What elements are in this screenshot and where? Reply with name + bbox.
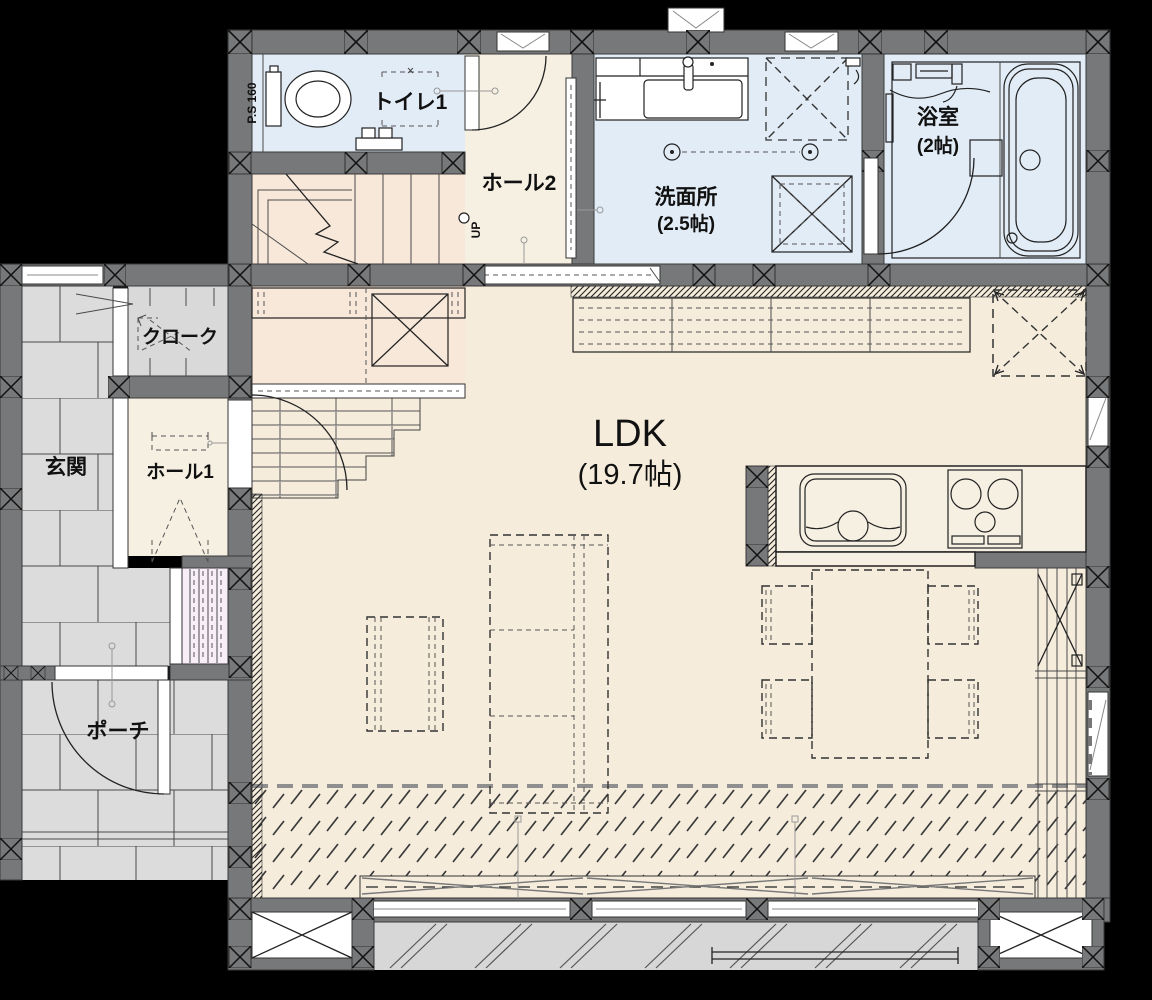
cloak-label: クローク [142, 326, 218, 348]
washroom-label: 洗面所 [655, 186, 718, 209]
counter-front [776, 552, 975, 566]
bathroom-floor [884, 54, 1086, 264]
bathroom-label: 浴室 [917, 105, 959, 129]
ps-label: P.S 160 [245, 82, 259, 123]
toilet-tank [266, 72, 281, 126]
closet-floor [252, 286, 465, 384]
hall2-label: ホール2 [482, 172, 557, 195]
hall1-step-edge [113, 398, 128, 568]
balcony-box-left [252, 912, 352, 958]
entrance-tiles-lower [113, 568, 170, 666]
toilet-door-leaf [465, 56, 479, 130]
floor-plan-page: P.S 160 トイレ1 ホール2 洗面所 (2.5帖) 浴室 (2帖) クロー… [0, 0, 1152, 1000]
toilet-label: トイレ1 [373, 91, 448, 114]
bath-door-leaf [864, 158, 878, 254]
stairs-up-label: UP [469, 222, 483, 239]
entrance-door-leaf [158, 680, 170, 794]
vanity [594, 57, 748, 120]
bathroom-size-label: (2帖) [917, 134, 959, 157]
entrance-step-edge [170, 568, 182, 664]
floor-plan-canvas: P.S 160 トイレ1 ホール2 洗面所 (2.5帖) 浴室 (2帖) クロー… [0, 0, 1152, 1000]
hall1-ldk-door-opening [228, 400, 252, 488]
balcony-box-right [990, 912, 1092, 958]
hall1-label: ホール1 [146, 462, 214, 483]
entrance-label: 玄関 [45, 455, 87, 479]
porch-tiles [22, 680, 228, 880]
deck-floor [374, 922, 978, 970]
kitchen [776, 466, 1086, 566]
stairs-up-marker [459, 213, 469, 223]
ldk-label: LDK [593, 413, 667, 455]
toilet-bowl [285, 71, 351, 127]
ldk-size-label: (19.7帖) [578, 458, 683, 491]
bath-mixer [846, 58, 860, 66]
stairs-floor [252, 174, 465, 264]
washroom-size-label: (2.5帖) [657, 212, 715, 235]
window-sill-strip [360, 876, 1035, 898]
porch-label: ポーチ [87, 719, 150, 743]
